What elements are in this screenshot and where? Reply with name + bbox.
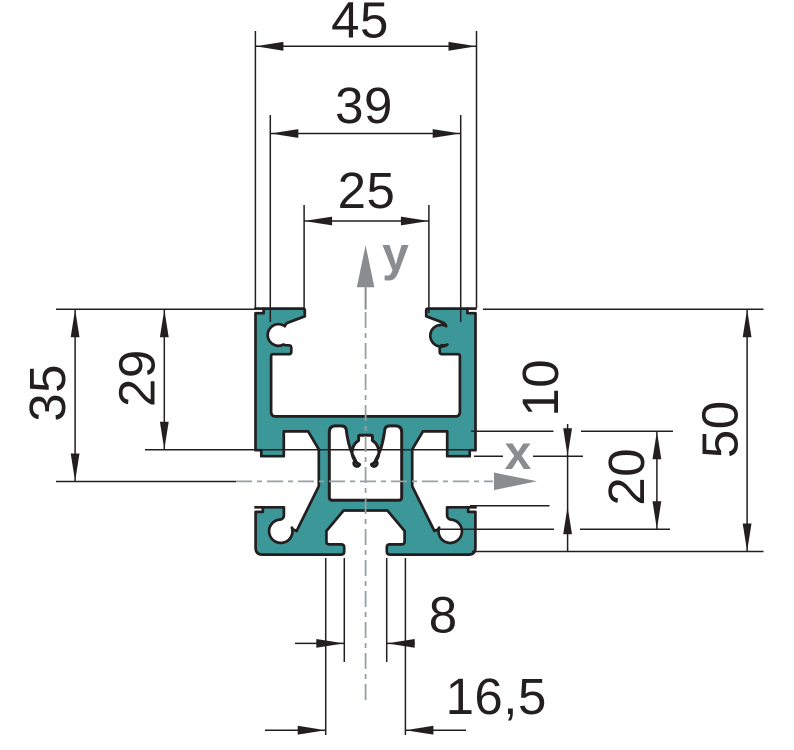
svg-text:35: 35 xyxy=(19,364,76,422)
svg-text:45: 45 xyxy=(331,0,389,49)
svg-text:16,5: 16,5 xyxy=(446,668,547,725)
svg-text:10: 10 xyxy=(512,359,569,417)
svg-text:8: 8 xyxy=(429,586,457,643)
svg-text:39: 39 xyxy=(335,77,393,134)
svg-text:y: y xyxy=(382,229,409,282)
svg-text:x: x xyxy=(505,427,532,480)
svg-text:50: 50 xyxy=(692,400,749,458)
svg-text:20: 20 xyxy=(598,448,655,506)
svg-text:25: 25 xyxy=(338,162,396,219)
svg-text:29: 29 xyxy=(109,349,166,407)
